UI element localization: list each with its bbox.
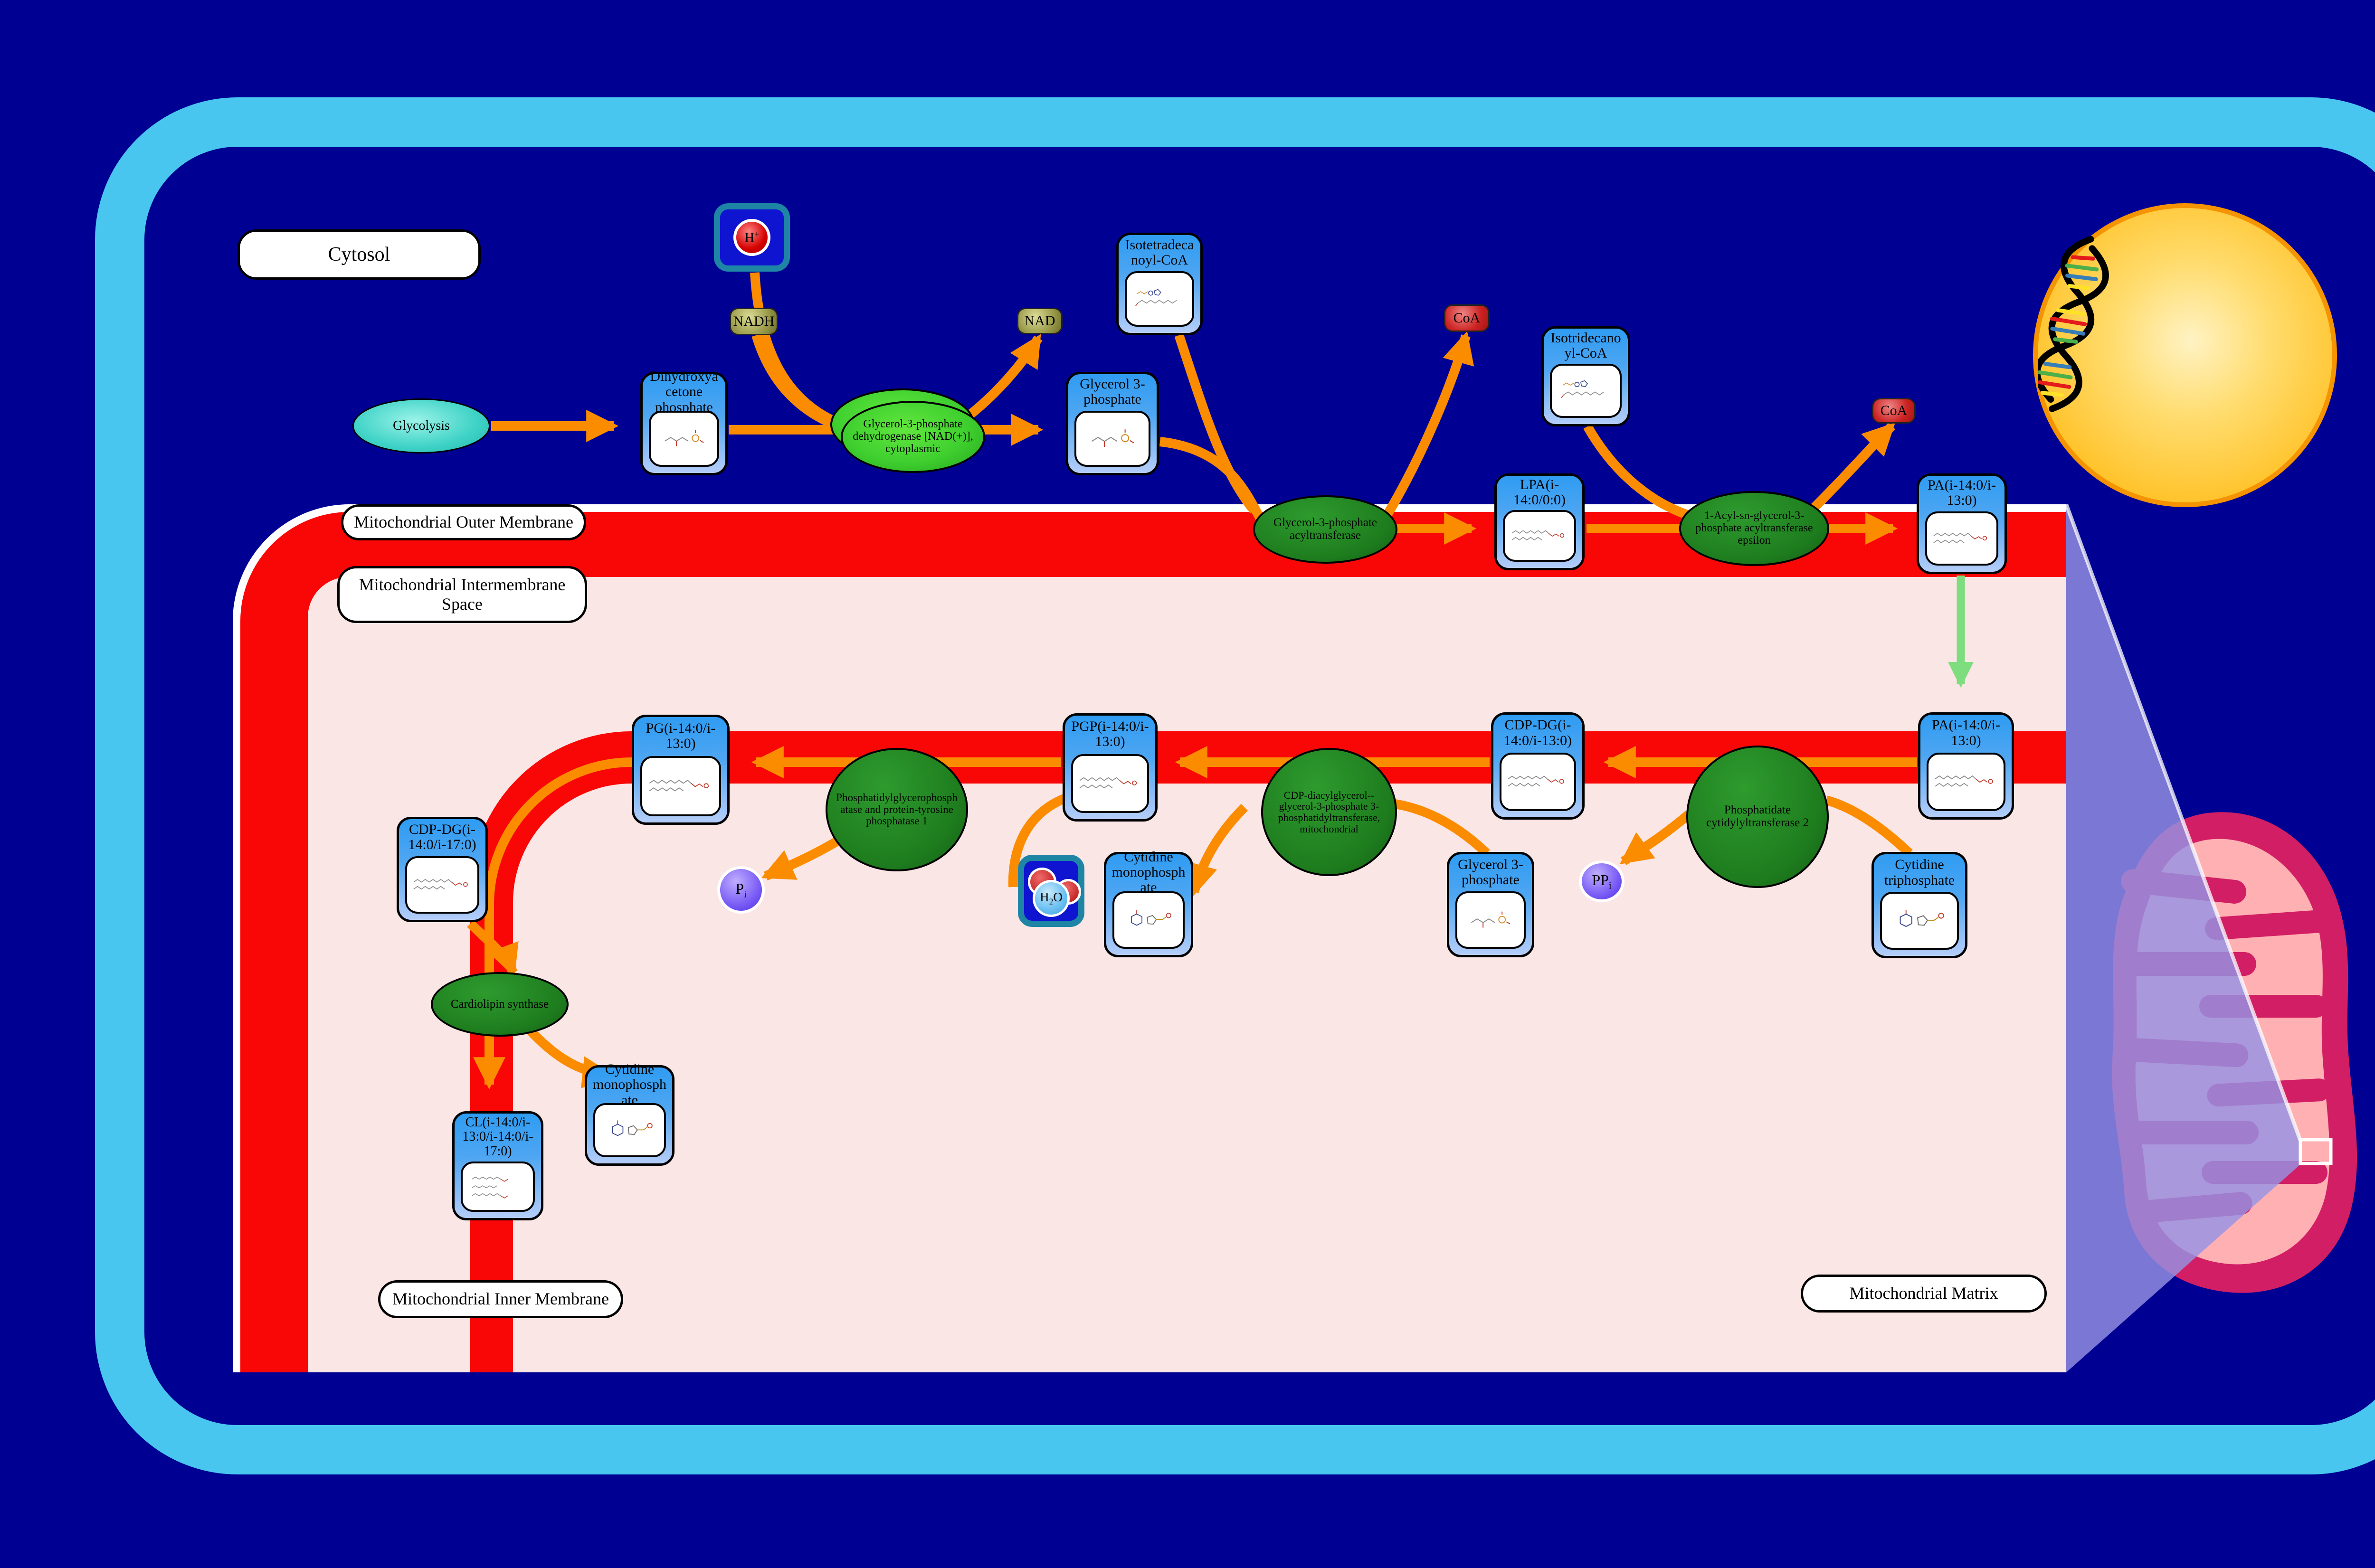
g3p-structure [1081, 420, 1144, 457]
node-isotetradecanoyl-coa[interactable]: Isotetradecanoyl-CoA [1116, 233, 1203, 335]
pg-structure [647, 766, 715, 806]
cdpdg17-structure [411, 866, 473, 904]
enzyme-gpd1[interactable]: Glycerol-3-phosphate dehydrogenase [NAD(… [841, 401, 985, 473]
label-inner-membrane: Mitochondrial Inner Membrane [378, 1280, 623, 1318]
node-pgp[interactable]: PGP(i-14:0/i-13:0) [1063, 713, 1158, 822]
iso14coa-structure [1130, 281, 1188, 317]
node-coa-1[interactable]: CoA [1444, 304, 1490, 332]
node-isotridecanoyl-coa[interactable]: Isotridecanoyl-CoA [1541, 326, 1630, 426]
enzyme-cds[interactable]: CDP-diacylglycerol--glycerol-3-phosphate… [1261, 748, 1397, 876]
node-pa-outer[interactable]: PA(i-14:0/i-13:0) [1917, 473, 2007, 574]
enzyme-crls[interactable]: Cardiolipin synthase [431, 972, 569, 1037]
pa-outer-structure [1931, 521, 1992, 556]
node-glycolysis[interactable]: Glycolysis [352, 398, 490, 453]
pathway-canvas: Cytosol Mitochondrial Outer Membrane Mit… [0, 0, 2375, 1568]
label-outer-membrane: Mitochondrial Outer Membrane [341, 504, 586, 540]
ctp-structure [1886, 902, 1952, 940]
enzyme-pcyt2[interactable]: Phosphatidate cytidylyltransferase 2 [1686, 746, 1829, 888]
node-lpa[interactable]: LPA(i-14:0/0:0) [1494, 473, 1585, 570]
node-h2o-box[interactable]: H2O [1018, 855, 1084, 927]
iso13coa-structure [1556, 373, 1616, 408]
lpa-structure [1509, 519, 1570, 553]
pa-inner-structure [1933, 763, 1999, 801]
node-cdpdg[interactable]: CDP-DG(i-14:0/i-13:0) [1491, 712, 1585, 820]
node-pg[interactable]: PG(i-14:0/i-13:0) [632, 715, 730, 825]
nucleus [2033, 203, 2337, 507]
node-cardiolipin[interactable]: CL(i-14:0/i-13:0/i-14:0/i-17:0) [452, 1111, 543, 1220]
node-cmp-b[interactable]: Cytidine monophosphate [1104, 852, 1193, 957]
h2o-atom-blue: H2O [1033, 880, 1070, 917]
dhap-structure [655, 420, 713, 457]
enzyme-gpat[interactable]: Glycerol-3-phosphate acyltransferase [1253, 495, 1397, 564]
cmp-a-structure [599, 1113, 660, 1148]
node-pa-inner[interactable]: PA(i-14:0/i-13:0) [1918, 712, 2014, 820]
node-h-plus-box[interactable]: H+ [714, 203, 790, 272]
dna-helix-icon [2038, 208, 2332, 502]
enzyme-agpat[interactable]: 1-Acyl-sn-glycerol-3-phosphate acyltrans… [1679, 491, 1829, 566]
node-coa-2[interactable]: CoA [1872, 398, 1916, 424]
label-cytosol: Cytosol [237, 229, 481, 280]
node-ppi[interactable]: PPi [1579, 860, 1624, 902]
g3p-matrix-structure [1461, 901, 1520, 939]
cdpdg-structure [1506, 763, 1570, 801]
h-plus-circle: H+ [733, 219, 770, 256]
cl-structure [467, 1171, 529, 1203]
node-g3p-matrix[interactable]: Glycerol 3-phosphate [1447, 852, 1534, 957]
node-cmp-a[interactable]: Cytidine monophosphate [585, 1065, 674, 1166]
label-matrix: Mitochondrial Matrix [1801, 1275, 2047, 1313]
node-dhap[interactable]: Dihydroxyacetone phosphate [640, 372, 728, 475]
enzyme-ptpmt1[interactable]: Phosphatidylglycerophosphatase and prote… [826, 748, 968, 871]
node-cdpdg17[interactable]: CDP-DG(i-14:0/i-17:0) [397, 817, 488, 922]
label-intermembrane-space: Mitochondrial Intermembrane Space [337, 566, 587, 623]
node-nadh[interactable]: NADH [730, 308, 778, 335]
pgp-structure [1077, 764, 1142, 803]
node-pi[interactable]: Pi [717, 866, 765, 914]
node-ctp[interactable]: Cytidine triphosphate [1871, 852, 1967, 958]
node-g3p-cytosol[interactable]: Glycerol 3-phosphate [1066, 372, 1159, 475]
cmp-b-structure [1119, 901, 1179, 939]
node-nad[interactable]: NAD [1017, 308, 1063, 334]
